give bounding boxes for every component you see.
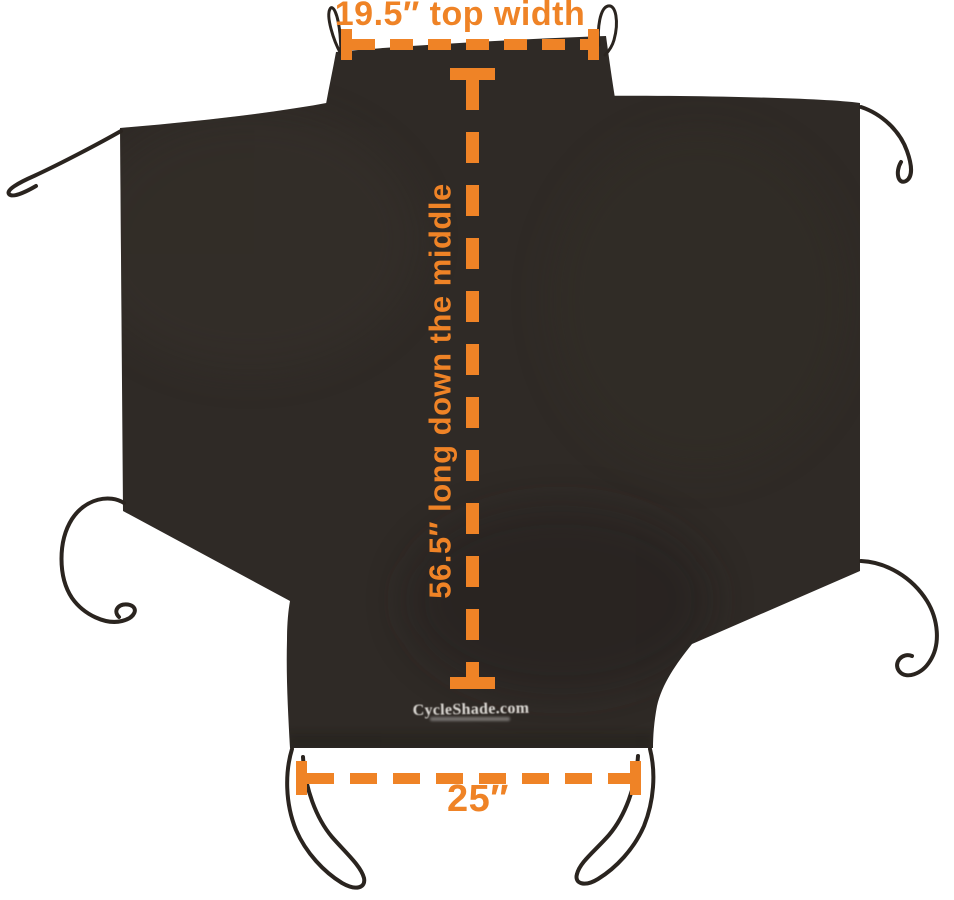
top-width-label: 19.5″ top width <box>335 0 585 31</box>
tie-cord-upper-left <box>9 131 121 195</box>
bottom-width-cap-right <box>630 761 641 795</box>
tie-cord-bottom-right <box>577 749 654 884</box>
middle-length-cap-top <box>450 68 495 80</box>
bottom-width-cap-left <box>296 761 307 795</box>
middle-length-cap-bottom <box>450 677 495 689</box>
logo-tagline-blur <box>430 717 510 721</box>
top-width-cap-left <box>341 29 352 60</box>
middle-length-label: 56.5″ long down the middle <box>425 183 456 598</box>
tie-cord-mid-left <box>62 498 135 621</box>
bottom-width-label: 25″ <box>447 780 509 818</box>
tie-cord-upper-right <box>861 107 911 182</box>
tie-cord-mid-right <box>861 561 937 675</box>
product-dimension-figure: 19.5″ top width 56.5″ long down the midd… <box>0 0 954 900</box>
top-width-cap-right <box>588 29 599 60</box>
product-photo <box>0 0 954 900</box>
